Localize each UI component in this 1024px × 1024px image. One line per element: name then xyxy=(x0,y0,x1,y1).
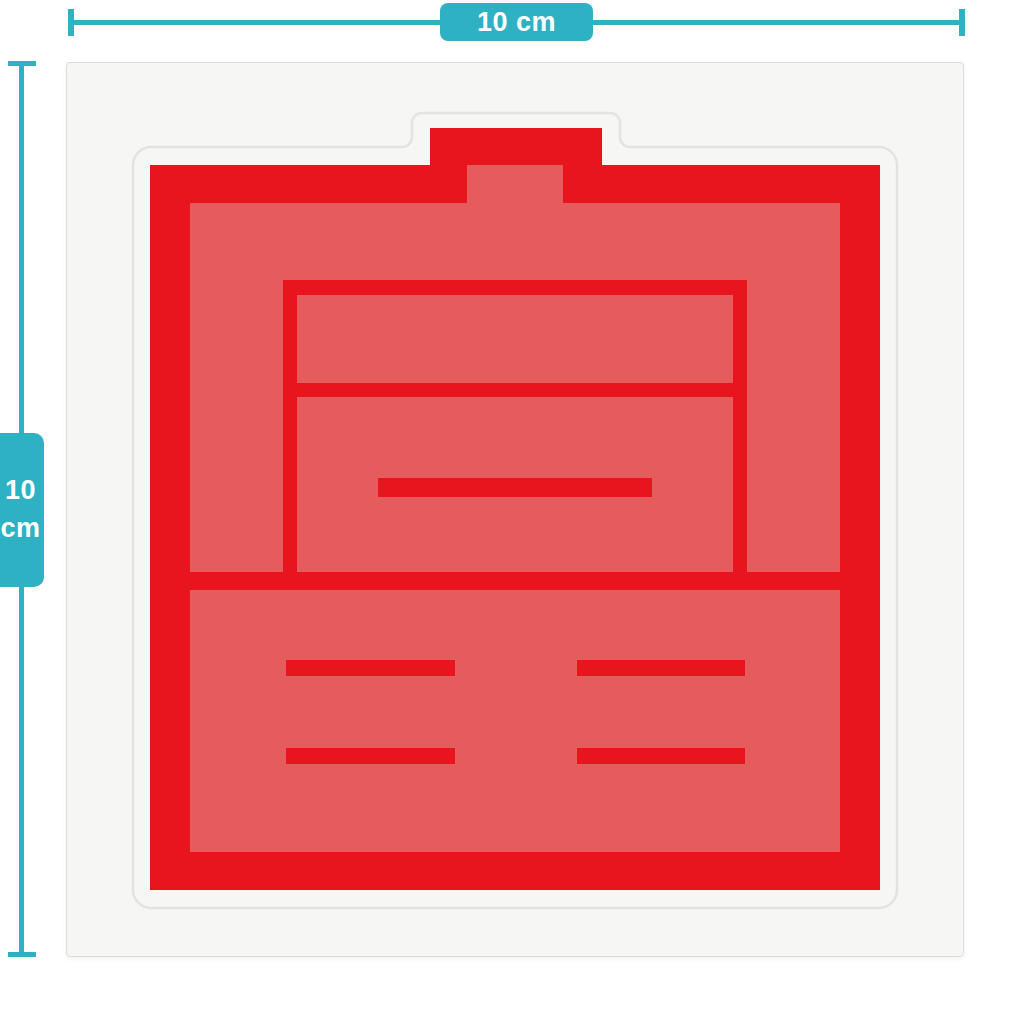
sticker-design-svg xyxy=(0,0,1024,1024)
character-divider-band xyxy=(190,572,840,590)
middle-box-dash xyxy=(378,478,652,497)
height-dimension-unit: cm xyxy=(0,510,40,548)
width-dimension-cap-right xyxy=(959,9,965,36)
product-mockup: 10 cm 10 cm xyxy=(0,0,1024,1024)
bottom-dash-top-left xyxy=(286,660,455,676)
height-dimension-value: 10 xyxy=(5,472,36,510)
height-dimension-cap-bottom xyxy=(8,952,36,957)
width-dimension-badge: 10 cm xyxy=(440,3,593,41)
character-tab-notch xyxy=(467,165,563,205)
width-dimension-cap-left xyxy=(68,9,74,36)
bottom-dash-bottom-left xyxy=(286,748,455,764)
bottom-dash-bottom-right xyxy=(577,748,745,764)
middle-box-upper-cell xyxy=(297,295,733,383)
bottom-dash-top-right xyxy=(577,660,745,676)
wealth-character-icon xyxy=(150,128,880,890)
height-dimension-cap-top xyxy=(8,61,36,66)
width-dimension-label: 10 cm xyxy=(477,7,556,38)
height-dimension-badge: 10 cm xyxy=(0,433,44,587)
